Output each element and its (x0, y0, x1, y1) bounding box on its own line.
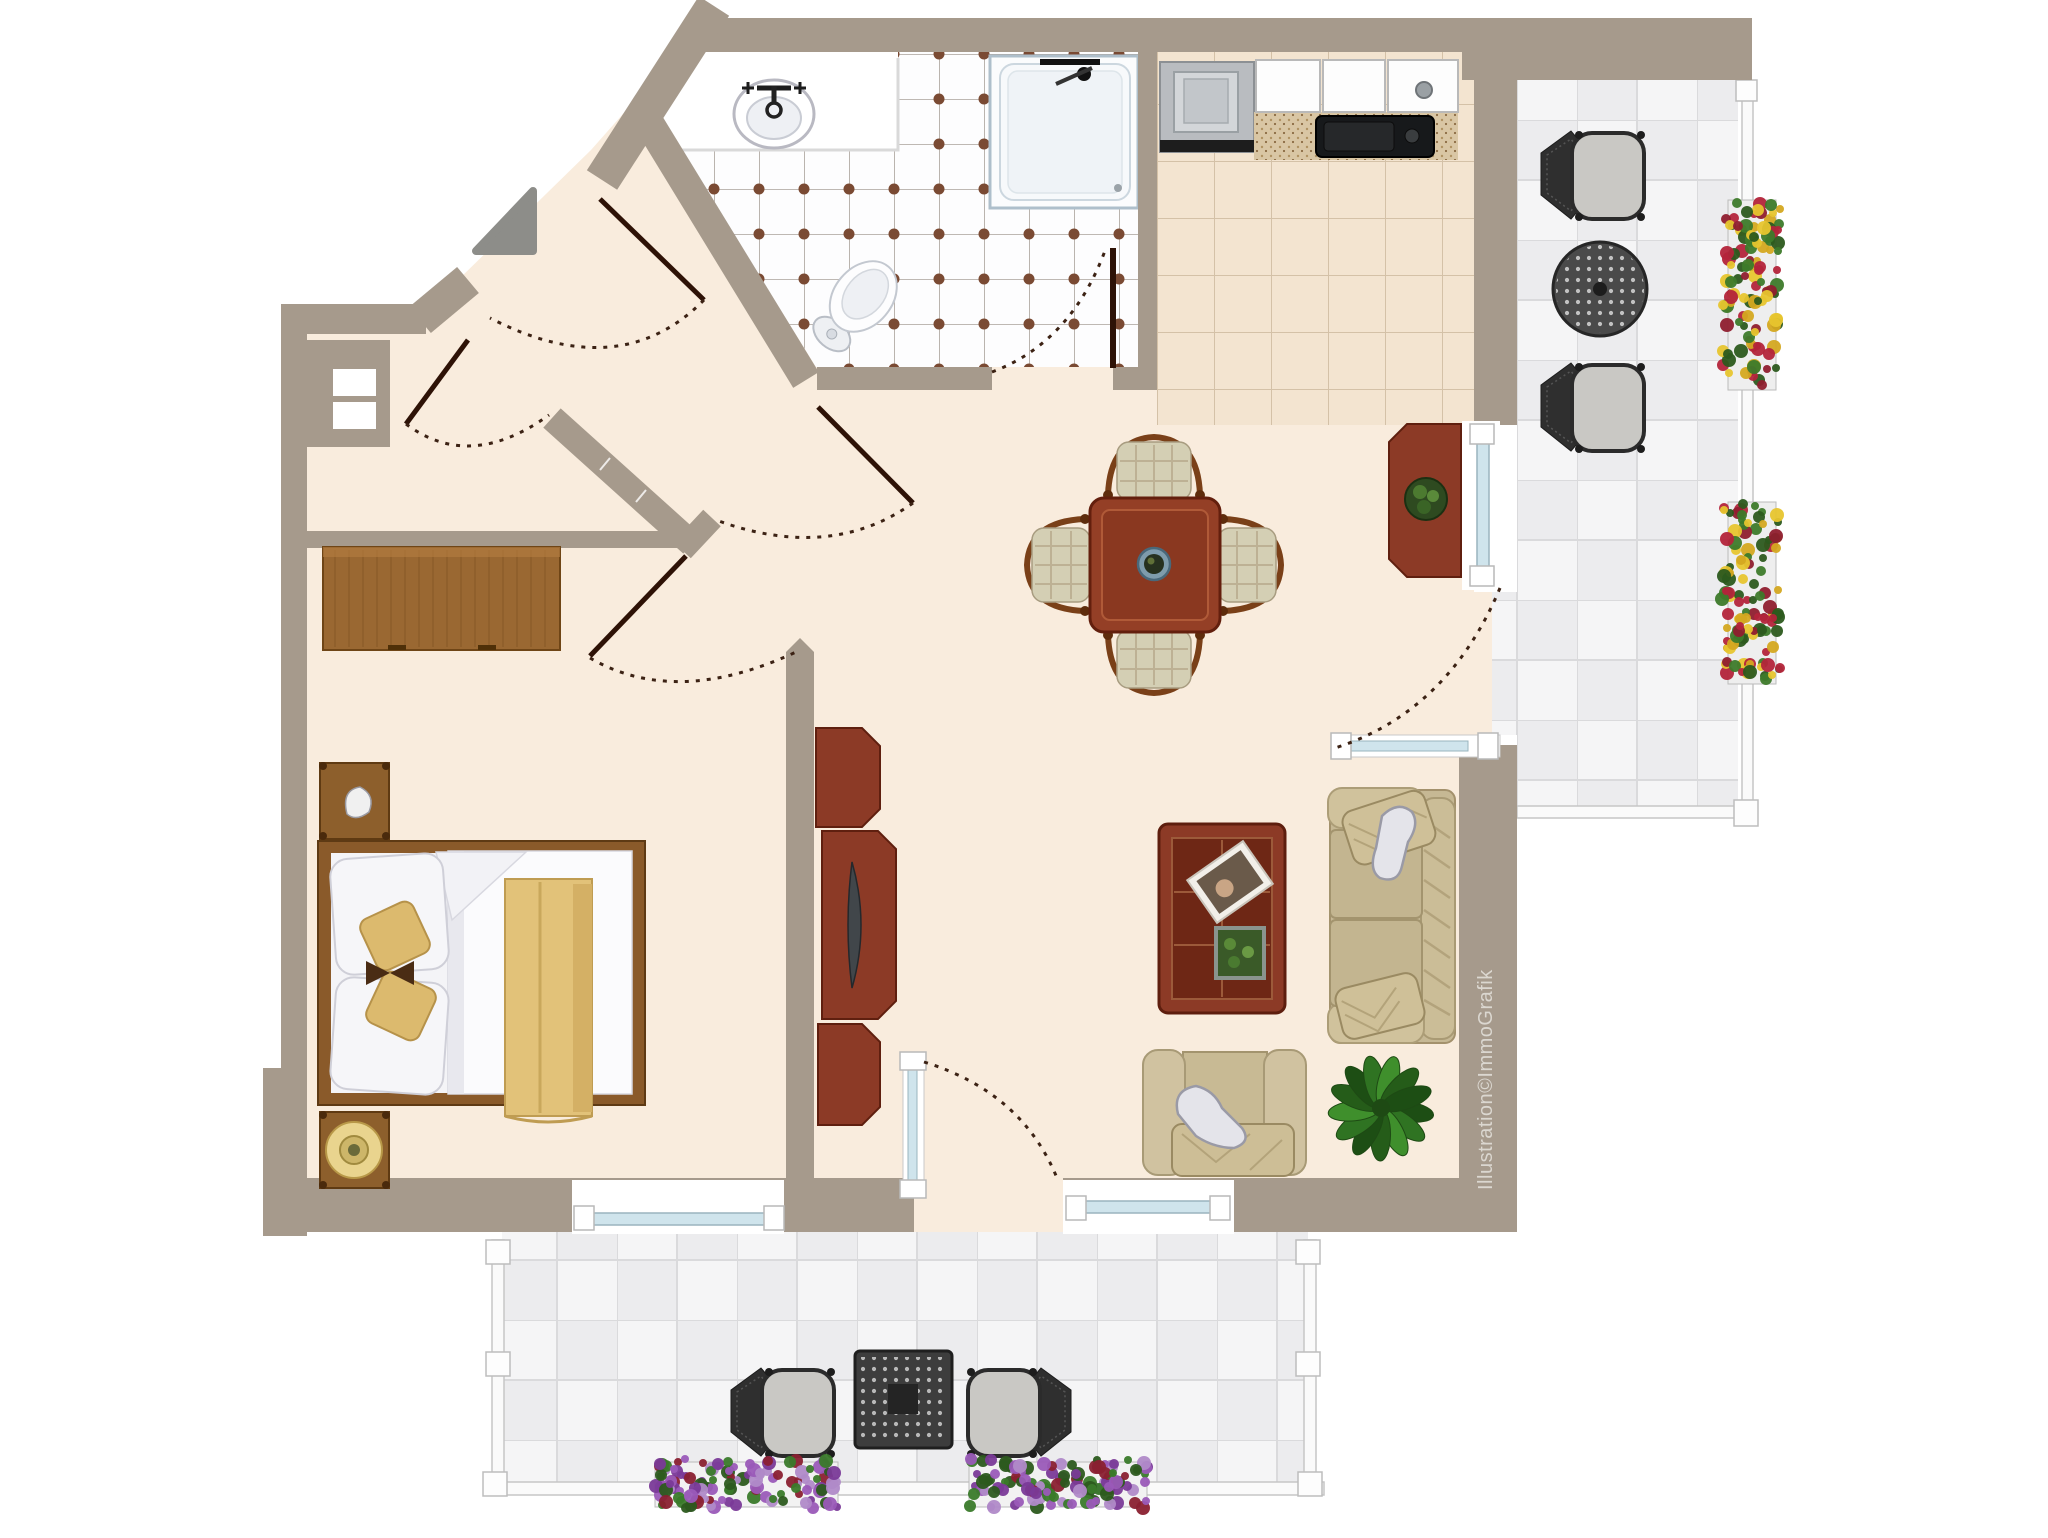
svg-text:Illustration©ImmoGrafik: Illustration©ImmoGrafik (1475, 969, 1497, 1190)
